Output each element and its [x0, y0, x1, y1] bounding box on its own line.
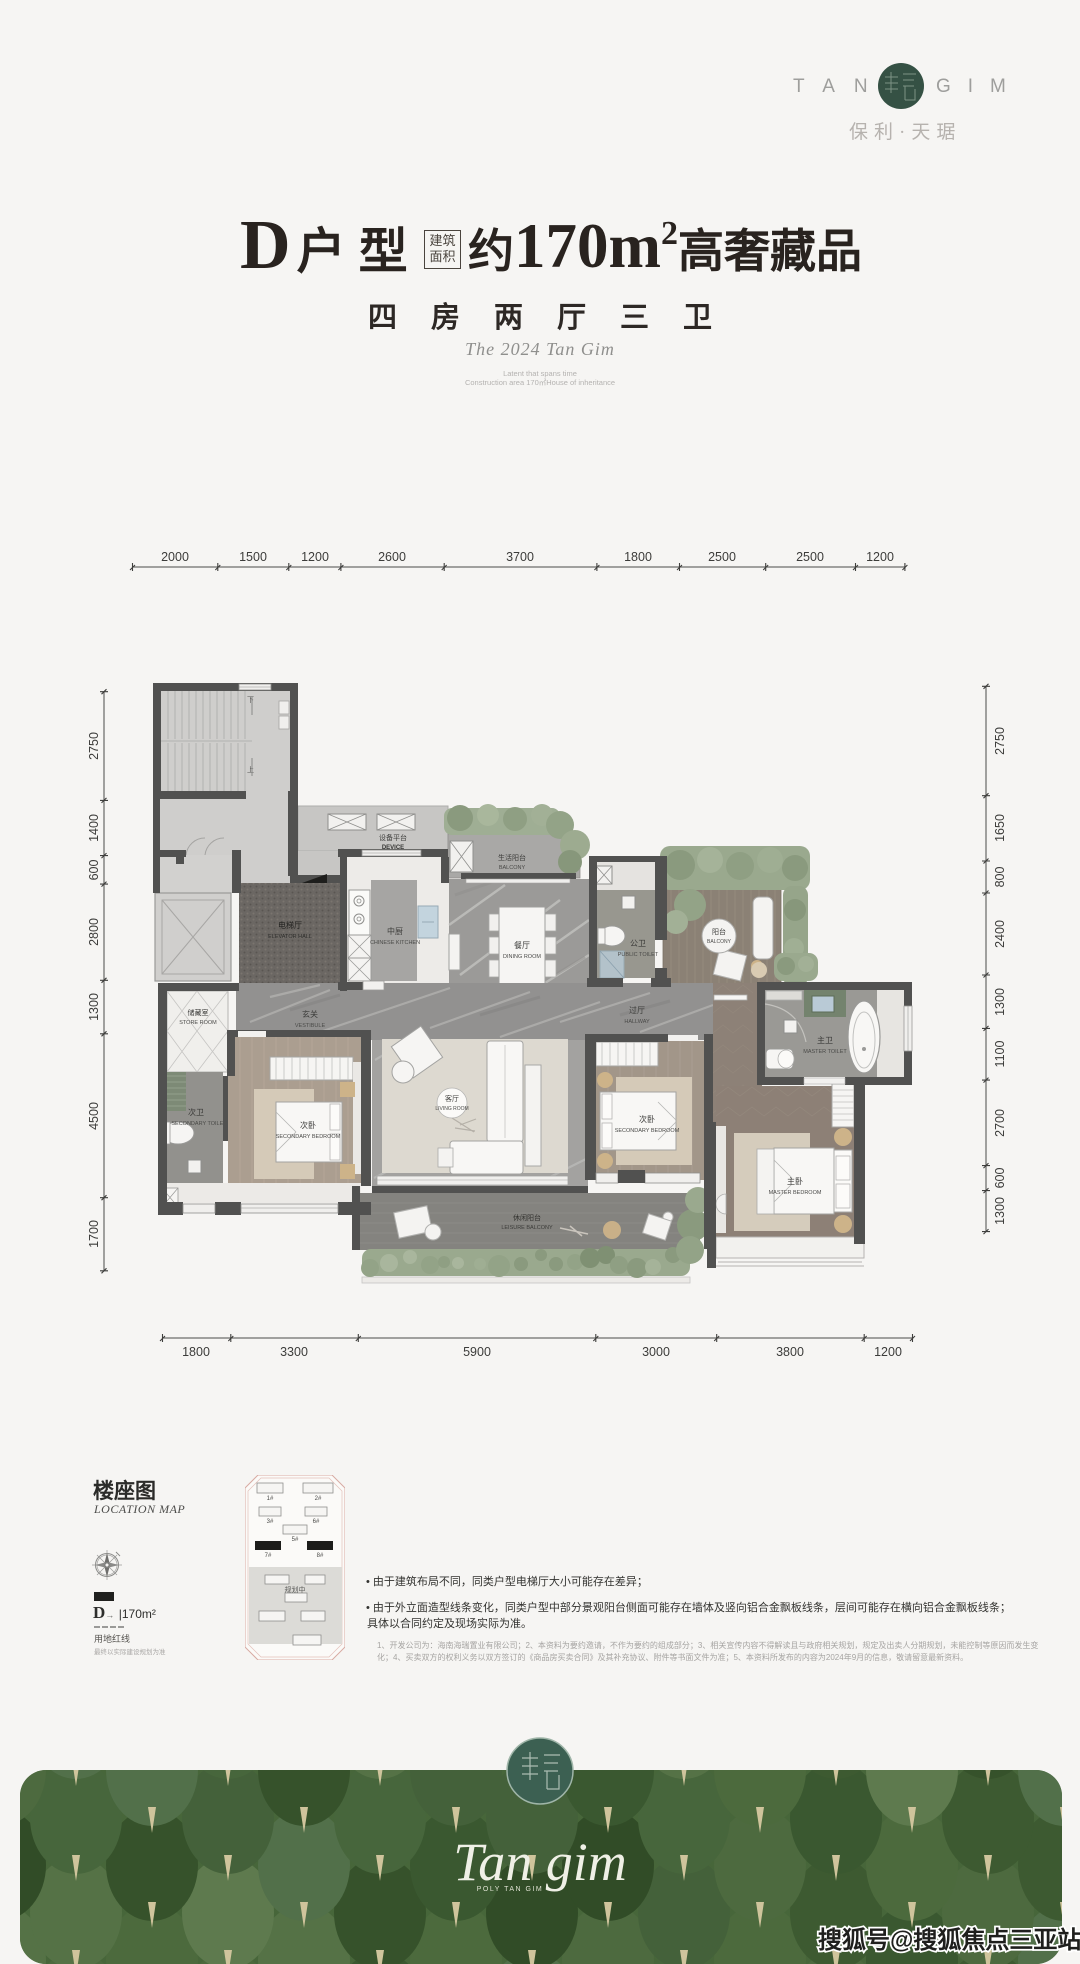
svg-text:1200: 1200 — [301, 550, 329, 564]
svg-text:2700: 2700 — [993, 1109, 1007, 1137]
svg-text:规划中: 规划中 — [285, 1585, 306, 1594]
svg-text:HALLWAY: HALLWAY — [624, 1019, 650, 1025]
svg-text:5900: 5900 — [463, 1345, 491, 1359]
svg-text:4500: 4500 — [87, 1102, 101, 1130]
svg-text:SECONDARY TOILET: SECONDARY TOILET — [171, 1121, 227, 1127]
svg-text:MASTER BEDROOM: MASTER BEDROOM — [769, 1190, 822, 1196]
svg-text:1700: 1700 — [87, 1220, 101, 1248]
svg-text:玄关: 玄关 — [302, 1009, 318, 1019]
svg-text:BALCONY: BALCONY — [707, 939, 732, 945]
svg-text:次卧: 次卧 — [300, 1120, 316, 1130]
svg-text:3#: 3# — [267, 1519, 274, 1525]
svg-text:过厅: 过厅 — [629, 1005, 645, 1015]
svg-text:2#: 2# — [315, 1496, 322, 1502]
svg-text:次卫: 次卫 — [188, 1107, 204, 1117]
svg-text:1300: 1300 — [993, 988, 1007, 1016]
svg-text:2600: 2600 — [378, 550, 406, 564]
svg-text:搜狐号@搜狐焦点三亚站: 搜狐号@搜狐焦点三亚站 — [818, 1926, 1080, 1954]
svg-text:次卧: 次卧 — [639, 1114, 655, 1124]
svg-text:3800: 3800 — [776, 1345, 804, 1359]
svg-text:2800: 2800 — [87, 918, 101, 946]
svg-text:阳台: 阳台 — [712, 927, 726, 936]
svg-text:公卫: 公卫 — [630, 939, 646, 948]
svg-text:设备平台: 设备平台 — [379, 833, 407, 842]
svg-text:7#: 7# — [265, 1553, 272, 1559]
svg-text:SECONDARY BEDROOM: SECONDARY BEDROOM — [276, 1134, 341, 1140]
svg-text:5#: 5# — [292, 1537, 299, 1543]
svg-text:POLY TAN GIM: POLY TAN GIM — [477, 1886, 544, 1893]
svg-text:1800: 1800 — [182, 1345, 210, 1359]
svg-text:主卧: 主卧 — [787, 1176, 803, 1186]
svg-text:主卫: 主卫 — [817, 1035, 833, 1045]
svg-text:3300: 3300 — [280, 1345, 308, 1359]
svg-text:2000: 2000 — [161, 550, 189, 564]
svg-text:餐厅: 餐厅 — [514, 941, 530, 950]
svg-text:2750: 2750 — [87, 732, 101, 760]
svg-text:CHINESE KITCHEN: CHINESE KITCHEN — [370, 940, 420, 946]
svg-text:1300: 1300 — [87, 993, 101, 1021]
svg-text:中厨: 中厨 — [387, 926, 403, 936]
svg-text:2750: 2750 — [993, 727, 1007, 755]
svg-text:2500: 2500 — [796, 550, 824, 564]
svg-text:600: 600 — [87, 860, 101, 881]
svg-text:Tan gim: Tan gim — [453, 1832, 627, 1892]
svg-text:VESTIBULE: VESTIBULE — [295, 1023, 326, 1029]
svg-text:600: 600 — [993, 1168, 1007, 1189]
svg-text:1200: 1200 — [874, 1345, 902, 1359]
svg-text:休闲阳台: 休闲阳台 — [513, 1213, 541, 1222]
svg-text:生活阳台: 生活阳台 — [498, 853, 526, 862]
svg-text:客厅: 客厅 — [445, 1094, 459, 1103]
svg-text:2500: 2500 — [708, 550, 736, 564]
svg-text:1500: 1500 — [239, 550, 267, 564]
svg-text:BALCONY: BALCONY — [499, 865, 526, 871]
svg-text:MASTER TOILET: MASTER TOILET — [803, 1049, 847, 1055]
svg-text:2400: 2400 — [993, 920, 1007, 948]
svg-text:下: 下 — [247, 696, 254, 704]
svg-text:PUBLIC TOILET: PUBLIC TOILET — [618, 952, 659, 958]
svg-text:上: 上 — [247, 765, 254, 774]
svg-text:6#: 6# — [313, 1519, 320, 1525]
svg-text:SECONDARY BEDROOM: SECONDARY BEDROOM — [615, 1128, 680, 1134]
svg-text:电梯厅: 电梯厅 — [278, 920, 302, 930]
svg-text:1800: 1800 — [624, 550, 652, 564]
svg-text:1400: 1400 — [87, 814, 101, 842]
svg-text:1300: 1300 — [993, 1197, 1007, 1225]
svg-text:DINING ROOM: DINING ROOM — [503, 954, 541, 960]
svg-text:1100: 1100 — [993, 1041, 1007, 1068]
svg-text:3000: 3000 — [642, 1345, 670, 1359]
svg-text:3700: 3700 — [506, 550, 534, 564]
svg-text:800: 800 — [993, 867, 1007, 888]
svg-text:1200: 1200 — [866, 550, 894, 564]
svg-text:ELEVATOR HALL: ELEVATOR HALL — [268, 934, 312, 940]
svg-text:8#: 8# — [317, 1553, 324, 1559]
svg-text:1650: 1650 — [993, 814, 1007, 842]
svg-text:1#: 1# — [267, 1496, 274, 1502]
svg-text:STORE ROOM: STORE ROOM — [179, 1020, 217, 1026]
svg-text:储藏室: 储藏室 — [188, 1008, 209, 1017]
svg-text:LEISURE BALCONY: LEISURE BALCONY — [501, 1225, 553, 1231]
svg-text:LIVING ROOM: LIVING ROOM — [435, 1106, 468, 1112]
